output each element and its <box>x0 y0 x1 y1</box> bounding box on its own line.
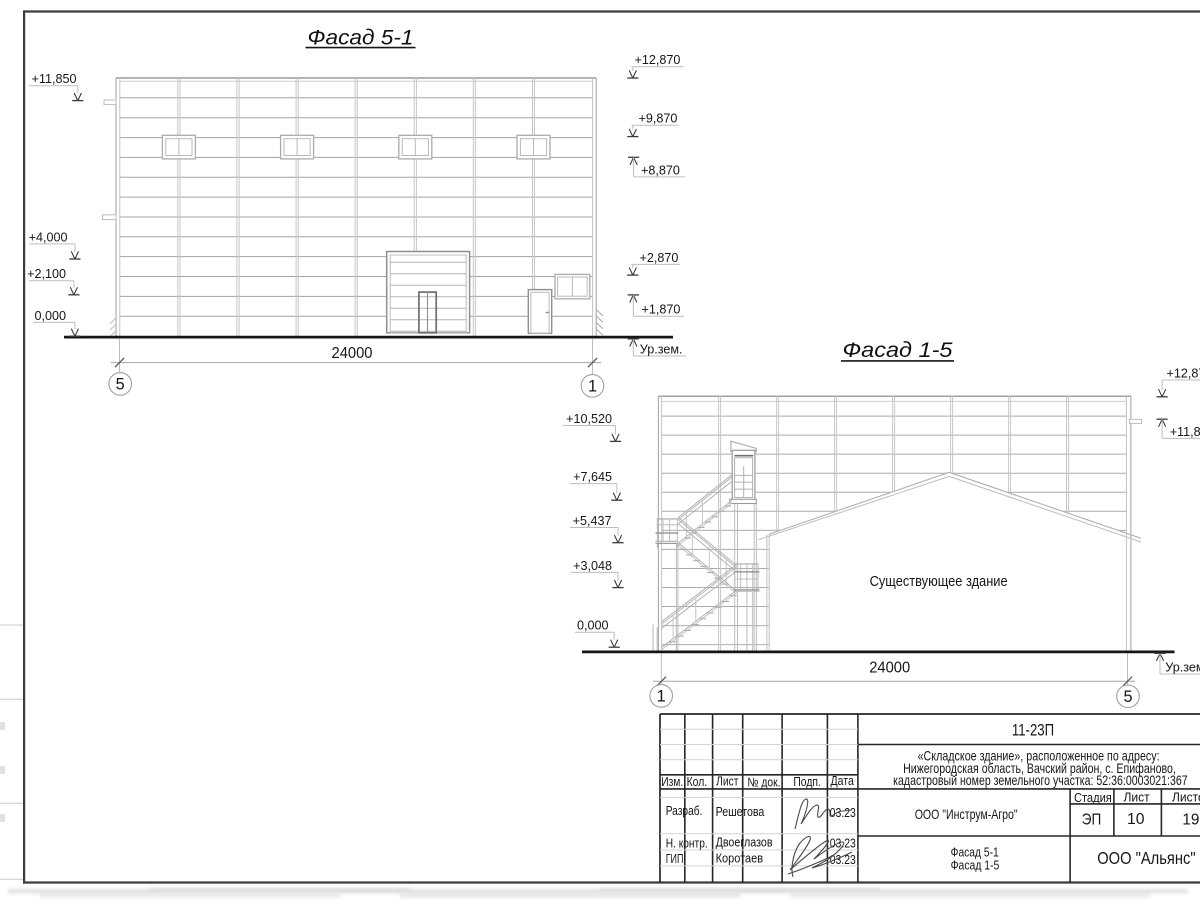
svg-text:+5,437: +5,437 <box>573 514 612 528</box>
svg-text:+4,000: +4,000 <box>29 230 68 244</box>
svg-text:Кол.: Кол. <box>687 774 708 789</box>
svg-text:0,000: 0,000 <box>577 619 609 633</box>
svg-text:ГИП: ГИП <box>666 851 684 866</box>
svg-text:Ур.зем.: Ур.зем. <box>640 342 683 356</box>
svg-text:03.23: 03.23 <box>830 805 856 820</box>
svg-text:Разраб.: Разраб. <box>666 803 703 818</box>
svg-text:1: 1 <box>657 688 666 706</box>
svg-text:Фасад 5-1: Фасад 5-1 <box>308 25 414 49</box>
svg-text:+2,870: +2,870 <box>640 251 679 265</box>
svg-text:+10,520: +10,520 <box>566 412 612 426</box>
svg-text:Коротаев: Коротаев <box>716 851 764 866</box>
svg-text:5: 5 <box>116 376 125 394</box>
svg-text:Существующее здание: Существующее здание <box>870 574 1008 590</box>
svg-text:10: 10 <box>1127 811 1145 828</box>
svg-text:0,000: 0,000 <box>34 309 66 323</box>
svg-text:24000: 24000 <box>332 345 373 362</box>
svg-text:Подп.: Подп. <box>793 774 820 789</box>
svg-text:ООО "Альянс": ООО "Альянс" <box>1097 848 1195 868</box>
svg-text:+3,048: +3,048 <box>573 559 612 573</box>
svg-text:+1,870: +1,870 <box>642 303 681 317</box>
svg-text:+7,645: +7,645 <box>573 470 612 484</box>
svg-text:кадастровый номер земельного у: кадастровый номер земельного участка: 52… <box>893 773 1188 788</box>
svg-text:+8,870: +8,870 <box>641 163 680 177</box>
svg-text:Фасад 1-5: Фасад 1-5 <box>951 857 1000 872</box>
svg-text:03.23: 03.23 <box>830 836 856 851</box>
svg-text:+11,850: +11,850 <box>32 72 77 86</box>
svg-text:Листов: Листов <box>1172 789 1200 804</box>
svg-text:№ док.: № док. <box>748 774 781 789</box>
svg-text:Ур.зем.: Ур.зем. <box>1165 660 1200 674</box>
svg-text:24000: 24000 <box>869 659 910 676</box>
svg-text:Стадия: Стадия <box>1074 790 1112 805</box>
svg-text:ЭП: ЭП <box>1082 812 1102 829</box>
svg-text:Фасад 1-5: Фасад 1-5 <box>843 338 954 362</box>
svg-text:5: 5 <box>1123 688 1132 706</box>
svg-text:Н. контр.: Н. контр. <box>666 836 708 851</box>
svg-text:Решетова: Решетова <box>716 804 765 819</box>
svg-text:Лист: Лист <box>716 774 738 789</box>
svg-text:ООО "Инструм-Агро": ООО "Инструм-Агро" <box>915 806 1018 822</box>
svg-text:Дата: Дата <box>831 773 855 788</box>
svg-text:1: 1 <box>588 378 597 396</box>
svg-text:+2,100: +2,100 <box>27 267 66 281</box>
svg-text:Изм.: Изм. <box>661 774 683 789</box>
svg-text:03.23: 03.23 <box>830 852 856 867</box>
svg-text:19: 19 <box>1182 812 1199 829</box>
svg-text:Лист: Лист <box>1124 789 1150 804</box>
svg-text:+11,850: +11,850 <box>1170 425 1200 439</box>
svg-text:Двоеглазов: Двоеглазов <box>716 835 773 850</box>
svg-text:+9,870: +9,870 <box>639 112 678 126</box>
svg-text:+12,870: +12,870 <box>635 53 681 67</box>
svg-text:+12,870: +12,870 <box>1167 366 1200 380</box>
svg-text:11-23П: 11-23П <box>1012 722 1054 740</box>
